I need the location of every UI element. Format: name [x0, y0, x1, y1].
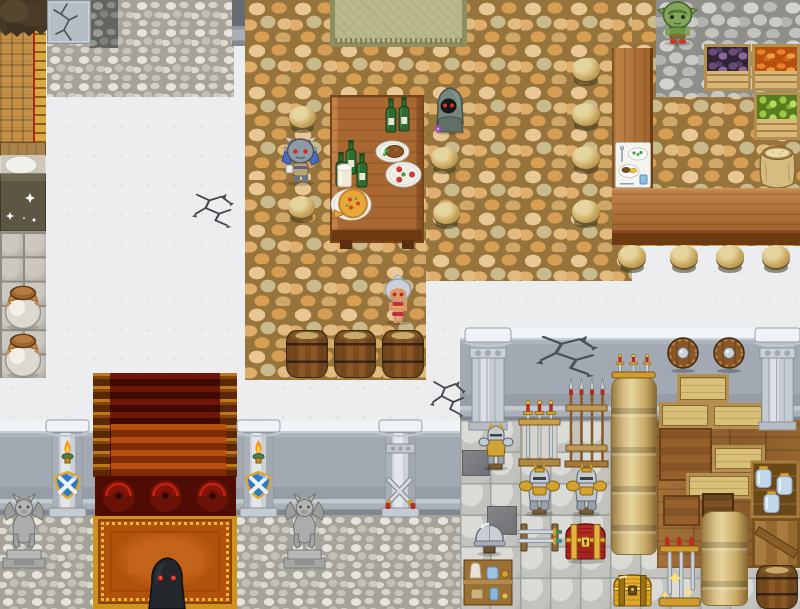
shadow-lurker[interactable] — [145, 555, 189, 609]
cellar-barrel-3 — [382, 330, 424, 378]
treasure-chest-red[interactable] — [563, 520, 608, 564]
plank-door[interactable] — [752, 518, 800, 568]
menu-card — [615, 142, 651, 188]
blue-imp[interactable] — [281, 135, 320, 186]
gargoyle-statue-right — [281, 486, 328, 571]
potion-jar-shelf — [751, 461, 799, 518]
storage-barrel — [756, 565, 798, 609]
lattice-wall — [0, 28, 34, 143]
goblin-villager[interactable] — [659, 0, 696, 46]
armor-statue-small — [476, 424, 516, 471]
stool-table-sw — [287, 196, 316, 223]
cellar-barrel-2 — [334, 330, 376, 378]
stool-bar-4 — [571, 200, 601, 228]
cracked-wall-tile — [47, 0, 91, 44]
floor-crack-2 — [430, 376, 466, 416]
stool-counter-3 — [715, 245, 745, 273]
floor-crack-1 — [192, 189, 234, 227]
stool-table-nw — [288, 106, 317, 133]
storage-shelf — [463, 559, 513, 606]
stool-bar-1 — [571, 58, 601, 86]
wall-shield-right — [712, 336, 746, 373]
pot-jar-2 — [2, 330, 44, 378]
armory-pillar-left — [465, 328, 511, 430]
game-viewport[interactable] — [0, 0, 800, 609]
ladder-trim — [33, 28, 46, 143]
crate-stack-top — [677, 374, 729, 403]
sack-stack-tall — [611, 377, 657, 555]
stool-bar-2 — [571, 103, 601, 131]
gargoyle-statue-left — [0, 486, 48, 571]
crate-stack-left — [659, 402, 711, 429]
wine-bottle-pair — [385, 97, 411, 133]
carpet-swirl-row — [95, 476, 236, 516]
armory-pillar-right — [755, 328, 800, 430]
stool-counter-2 — [669, 245, 699, 273]
caprese-plate — [385, 161, 422, 188]
standing-sword-rack — [516, 399, 563, 468]
carrot-crate — [752, 44, 800, 91]
staircase-light — [111, 424, 226, 477]
hall-pillar-torch-left — [44, 420, 91, 517]
pot-jar-1 — [2, 282, 44, 330]
bar-counter-horizontal — [612, 188, 800, 245]
armor-suit-right — [563, 465, 610, 517]
hall-pillar-torch-right — [235, 420, 282, 517]
wall-sword-display — [611, 354, 656, 381]
hall-pillar-crossed-swords — [377, 420, 424, 517]
helmet-display — [472, 515, 507, 557]
crate-embedded-2 — [663, 495, 700, 526]
sack-stack-short — [701, 511, 748, 606]
grain-sack — [755, 140, 800, 190]
stool-table-se — [432, 202, 461, 229]
pizza-plate — [330, 188, 372, 221]
entry-mat — [330, 0, 467, 47]
hooded-wraith[interactable] — [431, 86, 469, 135]
candle-sword-stand — [655, 538, 704, 609]
eggplant-crate — [704, 44, 751, 91]
treasure-chest-gold[interactable] — [611, 572, 654, 609]
stool-counter-4 — [761, 245, 791, 273]
silver-dancer[interactable] — [380, 274, 416, 325]
meat-plate — [375, 140, 410, 163]
milk-glass — [336, 163, 353, 188]
armor-suit-left — [516, 465, 563, 517]
cellar-barrel-1 — [286, 330, 328, 378]
stool-bar-3 — [571, 146, 601, 174]
stool-table-ne — [430, 147, 459, 174]
apple-crate — [754, 92, 800, 140]
flat-sword-rack — [515, 518, 564, 557]
armory-wall-crack — [536, 330, 598, 376]
pebble-patch-dark — [90, 0, 118, 48]
wall-shield-left — [666, 336, 700, 373]
bed — [0, 142, 46, 232]
spear-rack — [563, 377, 610, 468]
stool-counter-1 — [617, 245, 647, 273]
